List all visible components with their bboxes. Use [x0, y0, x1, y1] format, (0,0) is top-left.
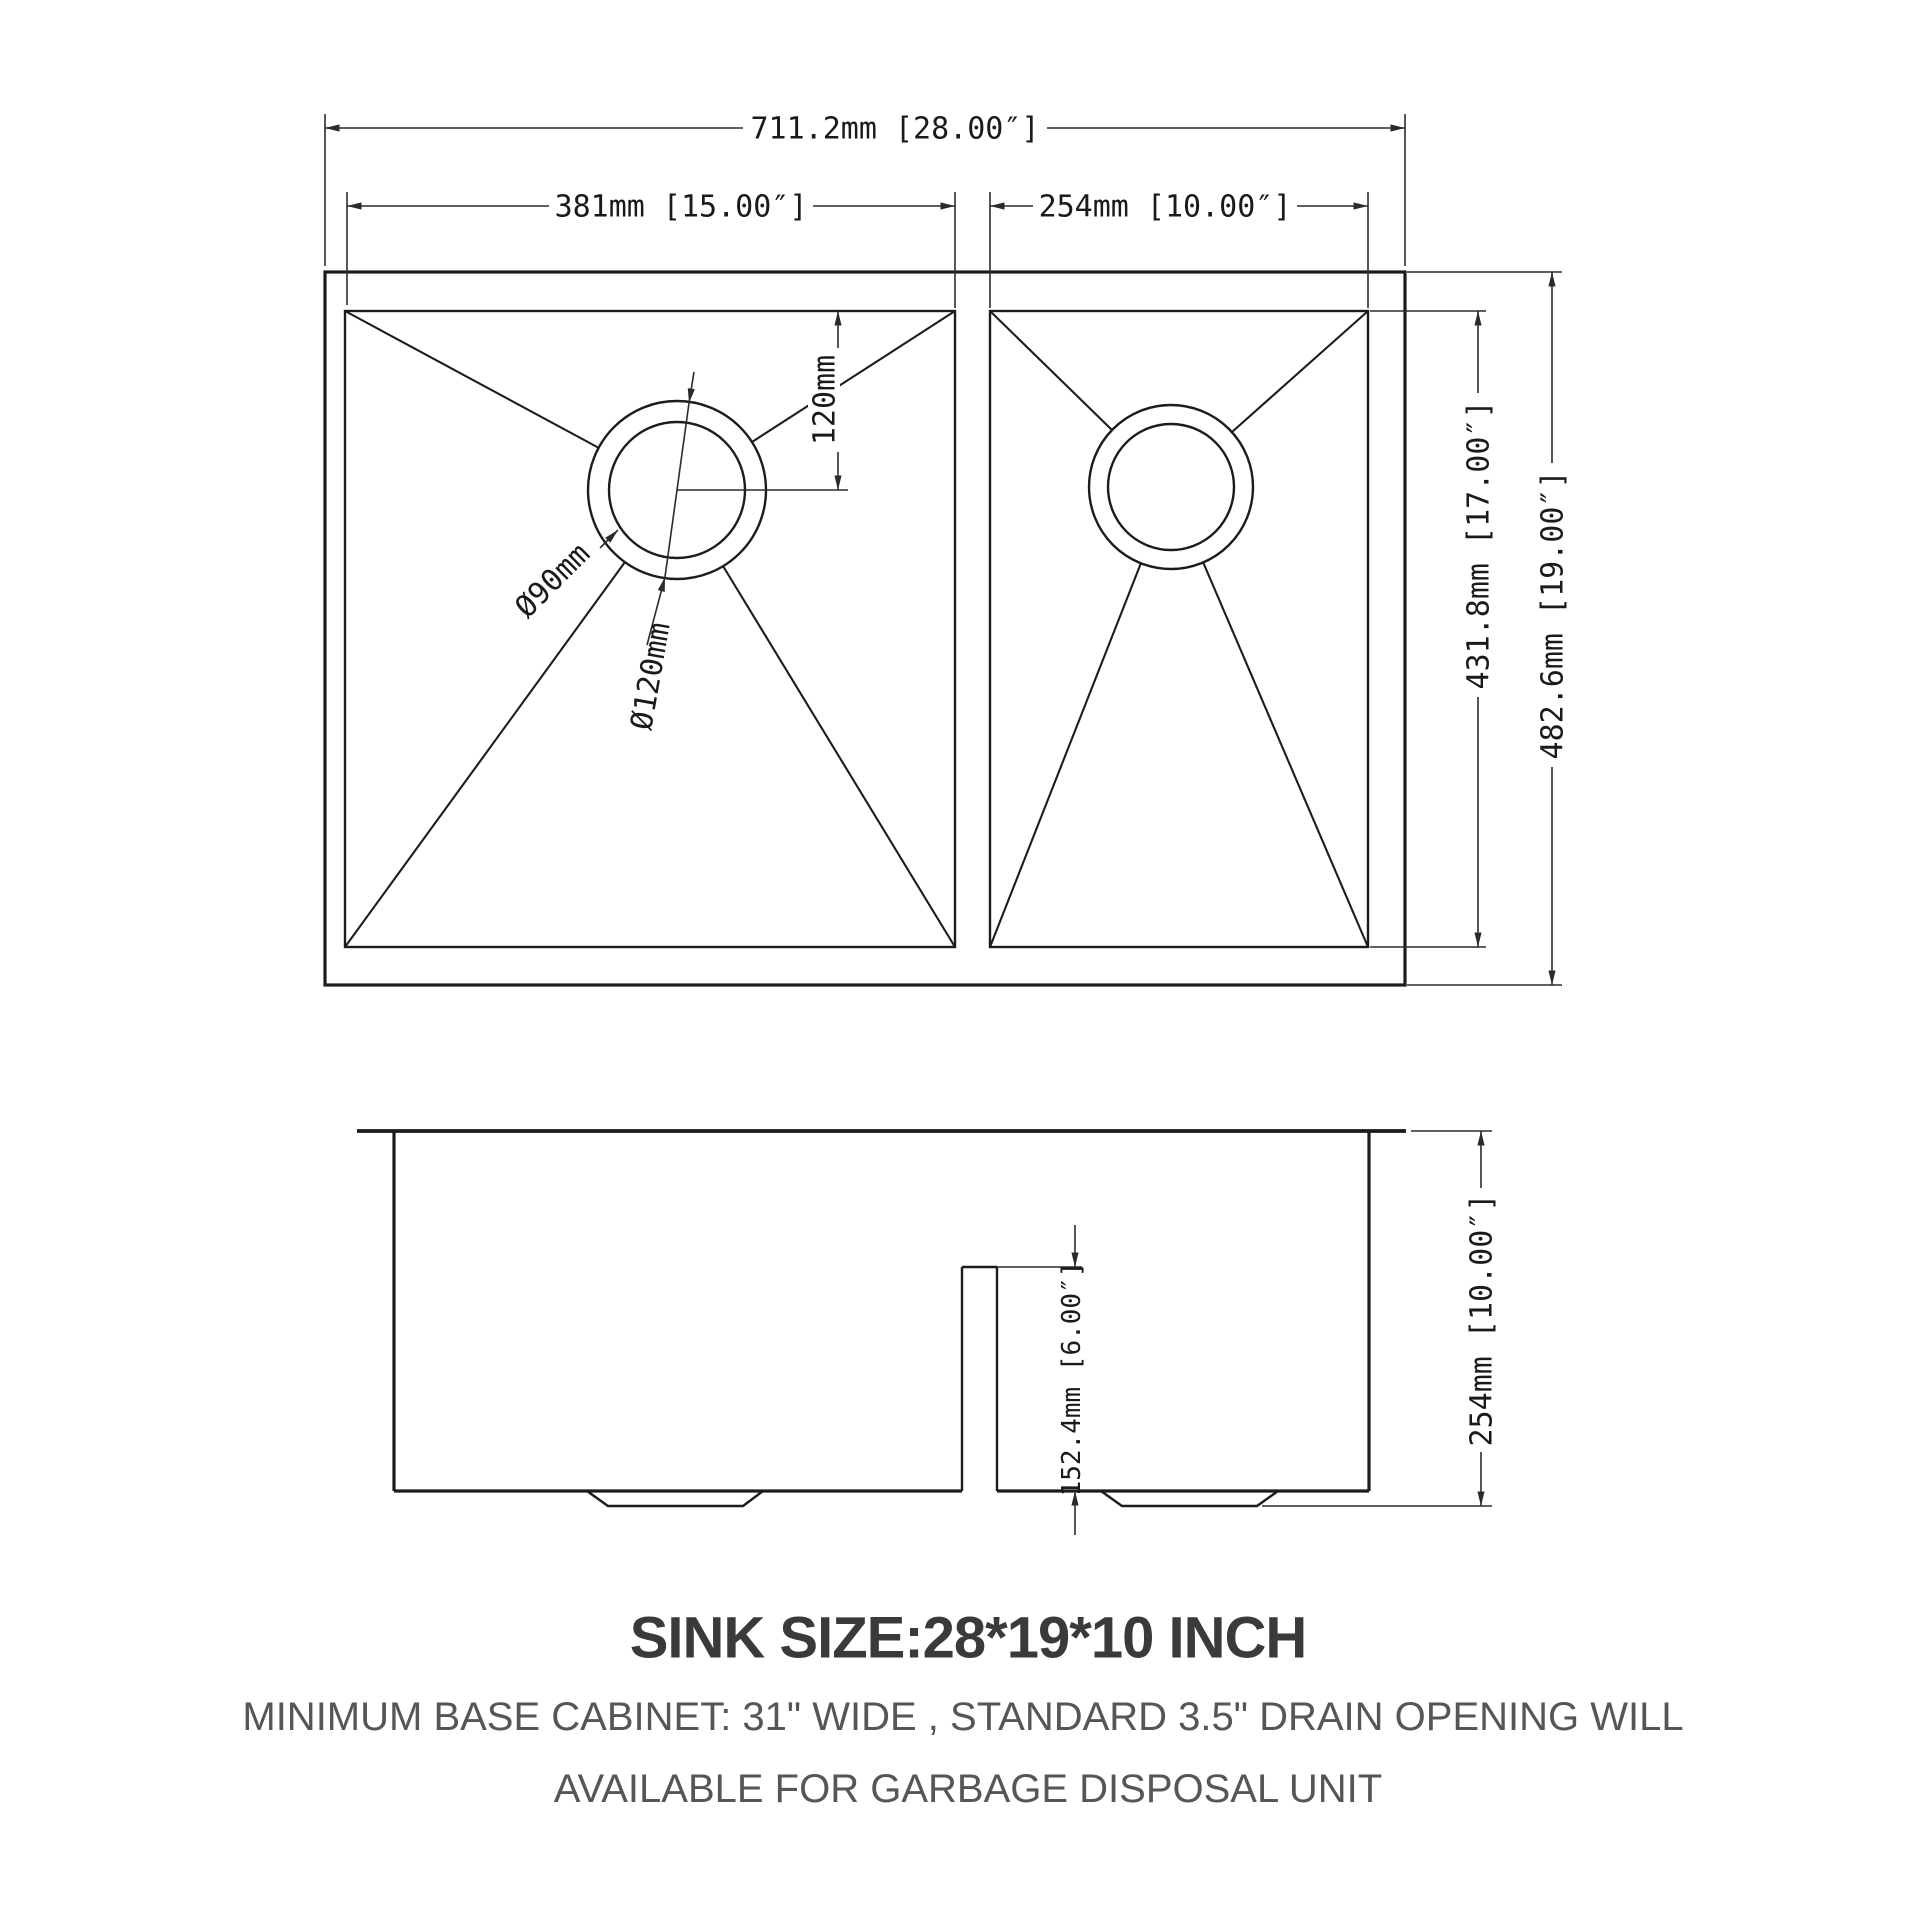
dim-text-drain-outer: Ø120mm — [624, 620, 677, 733]
drain-diameter-arrow — [689, 372, 694, 403]
dim-divider-height: 152.4mm [6.00″] — [1057, 1262, 1087, 1497]
sink-dimension-sheet: 711.2mm [28.00″] 381mm [15.00″] 254mm [1… — [0, 0, 1920, 1920]
dim-drain-inner-diameter: Ø90mm — [508, 536, 597, 625]
cabinet-note-line1: MINIMUM BASE CABINET: 31" WIDE , STANDAR… — [242, 1695, 1683, 1739]
sink-technical-drawing: 711.2mm [28.00″] 381mm [15.00″] 254mm [1… — [0, 0, 1920, 1920]
bowl-corner-line — [752, 311, 955, 442]
caption: SINK SIZE:28*19*10 INCH MINIMUM BASE CAB… — [242, 1606, 1683, 1812]
dim-right-bowl-width: 254mm [10.00″] — [1033, 189, 1297, 225]
dim-text-left-bowl: 381mm [15.00″] — [555, 190, 808, 225]
right-drain-inner — [1108, 424, 1234, 550]
cabinet-note-line2: AVAILABLE FOR GARBAGE DISPOSAL UNIT — [554, 1767, 1382, 1811]
sink-size-title: SINK SIZE:28*19*10 INCH — [630, 1606, 1306, 1671]
bowl-corner-line — [345, 562, 625, 947]
dim-overall-height: 254mm [10.00″] — [1464, 1188, 1500, 1452]
sink-outer-rim — [325, 272, 1405, 985]
right-drain-outer — [1089, 405, 1253, 569]
bowl-corner-line — [990, 563, 1141, 947]
bowl-corner-line — [723, 566, 955, 947]
dim-text-drain-offset: 120mm — [808, 355, 843, 445]
top-view: 711.2mm [28.00″] 381mm [15.00″] 254mm [1… — [325, 111, 1571, 985]
right-drain-boss — [1101, 1491, 1278, 1506]
bowl-corner-line — [1203, 562, 1368, 947]
dim-drain-outer-diameter: Ø120mm — [624, 620, 677, 733]
dim-left-bowl-width: 381mm [15.00″] — [549, 189, 813, 225]
dim-overall-depth: 482.6mm [19.00″] — [1535, 463, 1571, 767]
dim-overall-width: 711.2mm [28.00″] — [743, 111, 1047, 147]
bowl-corner-line — [990, 311, 1112, 430]
dim-text-overall-width: 711.2mm [28.00″] — [751, 112, 1040, 147]
left-drain-boss — [587, 1491, 763, 1506]
dim-text-bowl-depth: 431.8mm [17.00″] — [1462, 401, 1497, 690]
dim-text-divider-height: 152.4mm [6.00″] — [1057, 1262, 1087, 1497]
bowl-corner-line — [1232, 311, 1368, 432]
dim-text-right-bowl: 254mm [10.00″] — [1039, 190, 1292, 225]
dim-text-overall-depth: 482.6mm [19.00″] — [1536, 471, 1571, 760]
side-view: 152.4mm [6.00″] 254mm [10.00″] — [357, 1131, 1500, 1535]
dim-bowl-depth: 431.8mm [17.00″] — [1461, 393, 1497, 697]
dim-drain-offset: 120mm — [808, 348, 843, 452]
bowl-corner-line — [345, 311, 599, 448]
dim-text-overall-height: 254mm [10.00″] — [1465, 1194, 1500, 1447]
dim-text-drain-inner: Ø90mm — [508, 536, 597, 625]
